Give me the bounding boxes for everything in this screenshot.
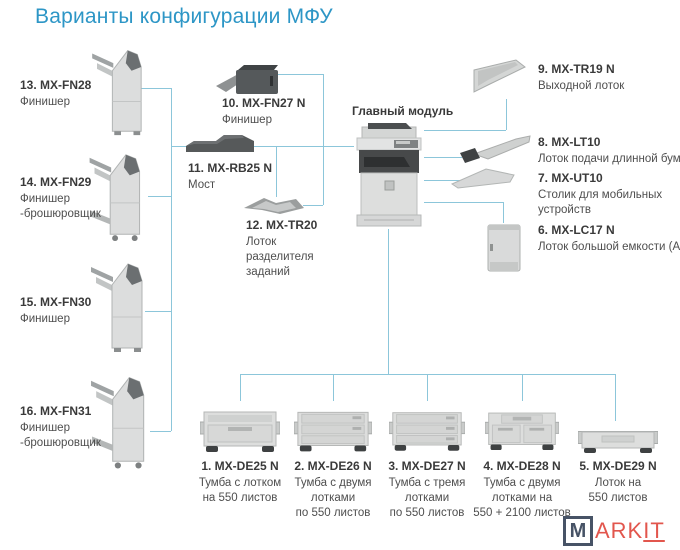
connector-lt10-h bbox=[424, 157, 462, 158]
connector-drop-4 bbox=[522, 374, 523, 401]
cabinet-mx-de28-icon bbox=[485, 398, 559, 454]
long-paper-tray-mx-lt10-icon bbox=[458, 134, 532, 165]
item-5-desc2: 550 листов bbox=[553, 491, 680, 506]
connector-tr20-h bbox=[303, 205, 323, 206]
cabinet-mx-de27-icon bbox=[389, 398, 465, 454]
item-14-label: 14. MX-FN29 Финишер -брошюровщик bbox=[20, 175, 101, 222]
item-11-desc: Мост bbox=[188, 178, 272, 193]
mobile-device-table-mx-ut10-icon bbox=[450, 167, 516, 192]
job-separator-tray-mx-tr20-icon bbox=[242, 196, 306, 216]
item-7-label: 7. MX-UT10 Столик для мобильных устройст… bbox=[538, 171, 662, 218]
item-12-desc2: разделителя bbox=[246, 250, 317, 265]
large-capacity-tray-mx-lc17-icon bbox=[486, 222, 524, 277]
item-5-code: 5. MX-DE29 N bbox=[553, 459, 680, 474]
item-16-code: 16. MX-FN31 bbox=[20, 404, 101, 419]
item-12-label: 12. MX-TR20 Лоток разделителя заданий bbox=[246, 218, 317, 280]
item-13-code: 13. MX-FN28 bbox=[20, 78, 91, 93]
tray-mx-de29-icon bbox=[578, 420, 658, 455]
item-7-code: 7. MX-UT10 bbox=[538, 171, 662, 186]
connector-tr20-v bbox=[276, 146, 277, 197]
item-15-desc: Финишер bbox=[20, 312, 91, 327]
finisher-mx-fn30-icon bbox=[90, 254, 152, 356]
connector-stub-14 bbox=[148, 196, 171, 197]
bridge-mx-rb25-icon bbox=[184, 130, 258, 158]
item-9-desc: Выходной лоток bbox=[538, 79, 624, 94]
page-title: Варианты конфигурации МФУ bbox=[35, 5, 333, 29]
item-14-desc2: -брошюровщик bbox=[20, 207, 101, 222]
main-module-mfp-icon bbox=[352, 119, 426, 230]
item-10-desc: Финишер bbox=[222, 113, 305, 128]
item-6-code: 6. MX-LC17 N bbox=[538, 223, 680, 238]
cabinet-mx-de26-icon bbox=[294, 398, 372, 454]
item-13-label: 13. MX-FN28 Финишер bbox=[20, 78, 91, 110]
item-14-desc: Финишер bbox=[20, 192, 101, 207]
connector-drop-2 bbox=[333, 374, 334, 401]
item-11-label: 11. MX-RB25 N Мост bbox=[188, 161, 272, 193]
item-9-code: 9. MX-TR19 N bbox=[538, 62, 624, 77]
connector-drop-5 bbox=[615, 374, 616, 421]
main-module-title: Главный модуль bbox=[352, 104, 453, 119]
item-5-desc: Лоток на bbox=[553, 476, 680, 491]
connector-main-down bbox=[388, 229, 389, 374]
item-8-label: 8. MX-LT10 Лоток подачи длинной бумаги bbox=[538, 135, 680, 167]
markit-logo-it-underlined: IT bbox=[643, 518, 665, 543]
item-7-desc2: устройств bbox=[538, 203, 662, 218]
item-6-desc: Лоток большой емкости (А4) bbox=[538, 240, 680, 255]
connector-lc17-v bbox=[503, 202, 504, 223]
connector-drop-3 bbox=[427, 374, 428, 401]
finisher-mx-fn28-icon bbox=[90, 42, 152, 138]
connector-drop-1 bbox=[240, 374, 241, 401]
connector-fn27-h bbox=[278, 74, 323, 75]
item-6-label: 6. MX-LC17 N Лоток большой емкости (А4) bbox=[538, 223, 680, 255]
item-15-label: 15. MX-FN30 Финишер bbox=[20, 295, 91, 327]
item-13-desc: Финишер bbox=[20, 95, 91, 110]
item-15-code: 15. MX-FN30 bbox=[20, 295, 91, 310]
item-9-label: 9. MX-TR19 N Выходной лоток bbox=[538, 62, 624, 94]
diagram-canvas: Варианты конфигурации МФУ bbox=[0, 0, 680, 550]
item-14-code: 14. MX-FN29 bbox=[20, 175, 101, 190]
item-12-desc3: заданий bbox=[246, 265, 317, 280]
connector-fn27-v bbox=[323, 74, 324, 205]
item-16-desc: Финишер bbox=[20, 421, 101, 436]
item-12-code: 12. MX-TR20 bbox=[246, 218, 317, 233]
connector-left-spine bbox=[171, 88, 172, 431]
exit-tray-mx-tr19-icon bbox=[468, 58, 528, 102]
markit-logo-m-box: M bbox=[563, 516, 593, 546]
item-10-code: 10. MX-FN27 N bbox=[222, 96, 305, 111]
item-5-label: 5. MX-DE29 N Лоток на 550 листов bbox=[553, 459, 680, 506]
item-16-label: 16. MX-FN31 Финишер -брошюровщик bbox=[20, 404, 101, 451]
connector-tr19-h bbox=[424, 130, 506, 131]
item-12-desc: Лоток bbox=[246, 235, 317, 250]
item-8-desc: Лоток подачи длинной бумаги bbox=[538, 152, 680, 167]
markit-logo-text: ARKIT bbox=[595, 520, 665, 542]
item-10-label: 10. MX-FN27 N Финишер bbox=[222, 96, 305, 128]
item-8-code: 8. MX-LT10 bbox=[538, 135, 680, 150]
markit-logo: M ARKIT bbox=[563, 516, 665, 546]
item-7-desc: Столик для мобильных bbox=[538, 188, 662, 203]
connector-lc17-h bbox=[424, 202, 503, 203]
main-module-label: Главный модуль bbox=[352, 104, 453, 121]
cabinet-mx-de25-icon bbox=[200, 398, 280, 454]
markit-logo-ark: ARK bbox=[595, 518, 643, 543]
item-11-code: 11. MX-RB25 N bbox=[188, 161, 272, 176]
connector-tr19-v bbox=[506, 99, 507, 130]
item-16-desc2: -брошюровщик bbox=[20, 436, 101, 451]
